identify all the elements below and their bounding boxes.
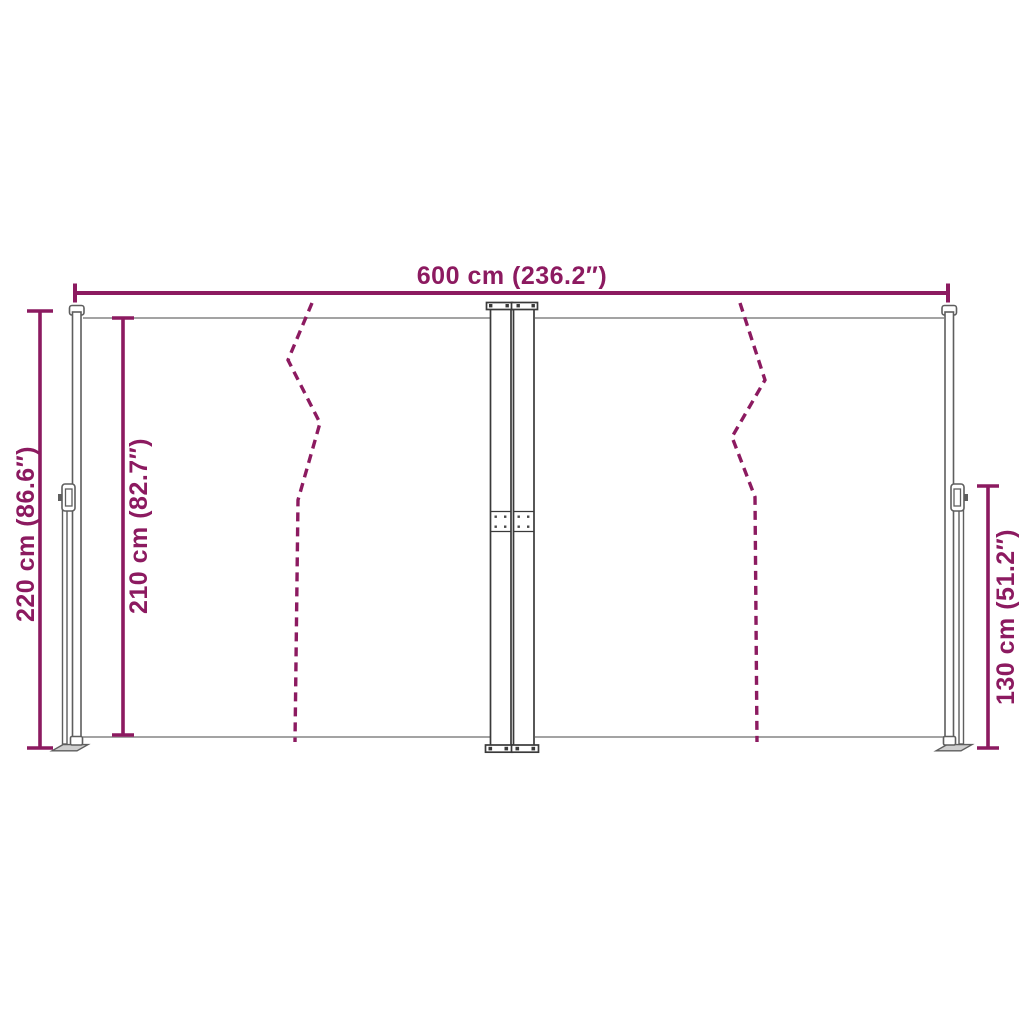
screw-dot [504,526,506,528]
screw-dot [489,304,492,307]
screw-dot [532,747,536,751]
left-pole-handle-tab [58,494,63,501]
screw-dot [518,526,520,528]
left-cassette-body [491,309,512,746]
dimension-width-600: 600 cm (236.2″) [75,262,948,303]
right-pole-body [945,312,954,745]
right-pole-handle-tab [964,494,969,501]
right-pole-outer-bar [959,505,964,744]
dimension-height-220: 220 cm (86.6″) [12,311,53,748]
dimension-height-130-label: 130 cm (51.2″) [992,529,1020,705]
retractable-side-awning-diagram: 600 cm (236.2″) 220 cm (86.6″) 210 cm (8… [0,0,1024,1024]
dimension-height-220-label: 220 cm (86.6″) [12,446,40,622]
center-cassettes [486,303,539,753]
right-fold-dashed-line [732,303,765,742]
screw-dot [517,304,520,307]
screw-dot [506,304,509,307]
dimension-width-label: 600 cm (236.2″) [417,262,607,290]
left-pole-foot [52,745,88,751]
right-pole-bottom-cap [944,737,956,746]
dimension-height-210-label: 210 cm (82.7″) [125,438,153,614]
left-fold-dashed-line [288,303,320,742]
left-pole-handle [62,484,75,511]
right-cassette-body [514,309,535,746]
product-dimension-diagram: 600 cm (236.2″) 220 cm (86.6″) 210 cm (8… [0,0,1024,1024]
screw-dot [527,526,529,528]
left-pole-bottom-cap [71,737,83,746]
screw-dot [495,516,497,518]
awning-structure [52,303,972,753]
right-pole [936,306,972,751]
dimension-height-130: 130 cm (51.2″) [977,486,1020,748]
screw-dot [527,516,529,518]
screw-dot [504,516,506,518]
screw-dot [516,747,520,751]
left-pole-body [73,312,82,745]
left-pole-outer-bar [63,505,68,744]
left-pole [52,306,88,751]
screw-dot [518,516,520,518]
screw-dot [532,304,535,307]
right-pole-handle [951,484,964,511]
screw-dot [495,526,497,528]
screw-dot [505,747,509,751]
dimension-height-210: 210 cm (82.7″) [112,318,153,735]
screw-dot [489,747,493,751]
